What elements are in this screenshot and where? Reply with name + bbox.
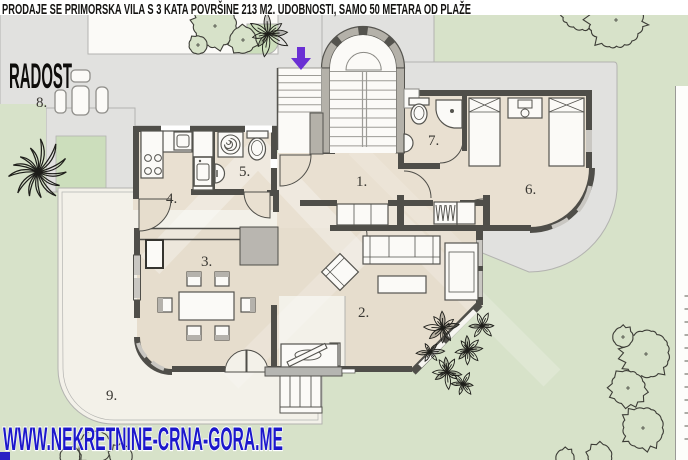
svg-text:1.: 1. bbox=[356, 174, 367, 190]
svg-text:4.: 4. bbox=[166, 191, 177, 207]
svg-text:2.: 2. bbox=[358, 305, 369, 321]
svg-text:3.: 3. bbox=[201, 254, 212, 270]
svg-text:5.: 5. bbox=[239, 164, 250, 180]
svg-text:WWW.NEKRETNINE-CRNA-GORA.ME: WWW.NEKRETNINE-CRNA-GORA.ME bbox=[3, 421, 283, 457]
svg-text:7.: 7. bbox=[428, 133, 439, 149]
svg-text:9.: 9. bbox=[106, 388, 117, 404]
svg-text:PRODAJE SE PRIMORSKA VILA S 3: PRODAJE SE PRIMORSKA VILA S 3 KATA POVRŠ… bbox=[2, 0, 471, 18]
svg-text:6.: 6. bbox=[525, 182, 536, 198]
svg-text:8.: 8. bbox=[36, 95, 47, 111]
svg-text:RADOST: RADOST bbox=[9, 57, 72, 96]
